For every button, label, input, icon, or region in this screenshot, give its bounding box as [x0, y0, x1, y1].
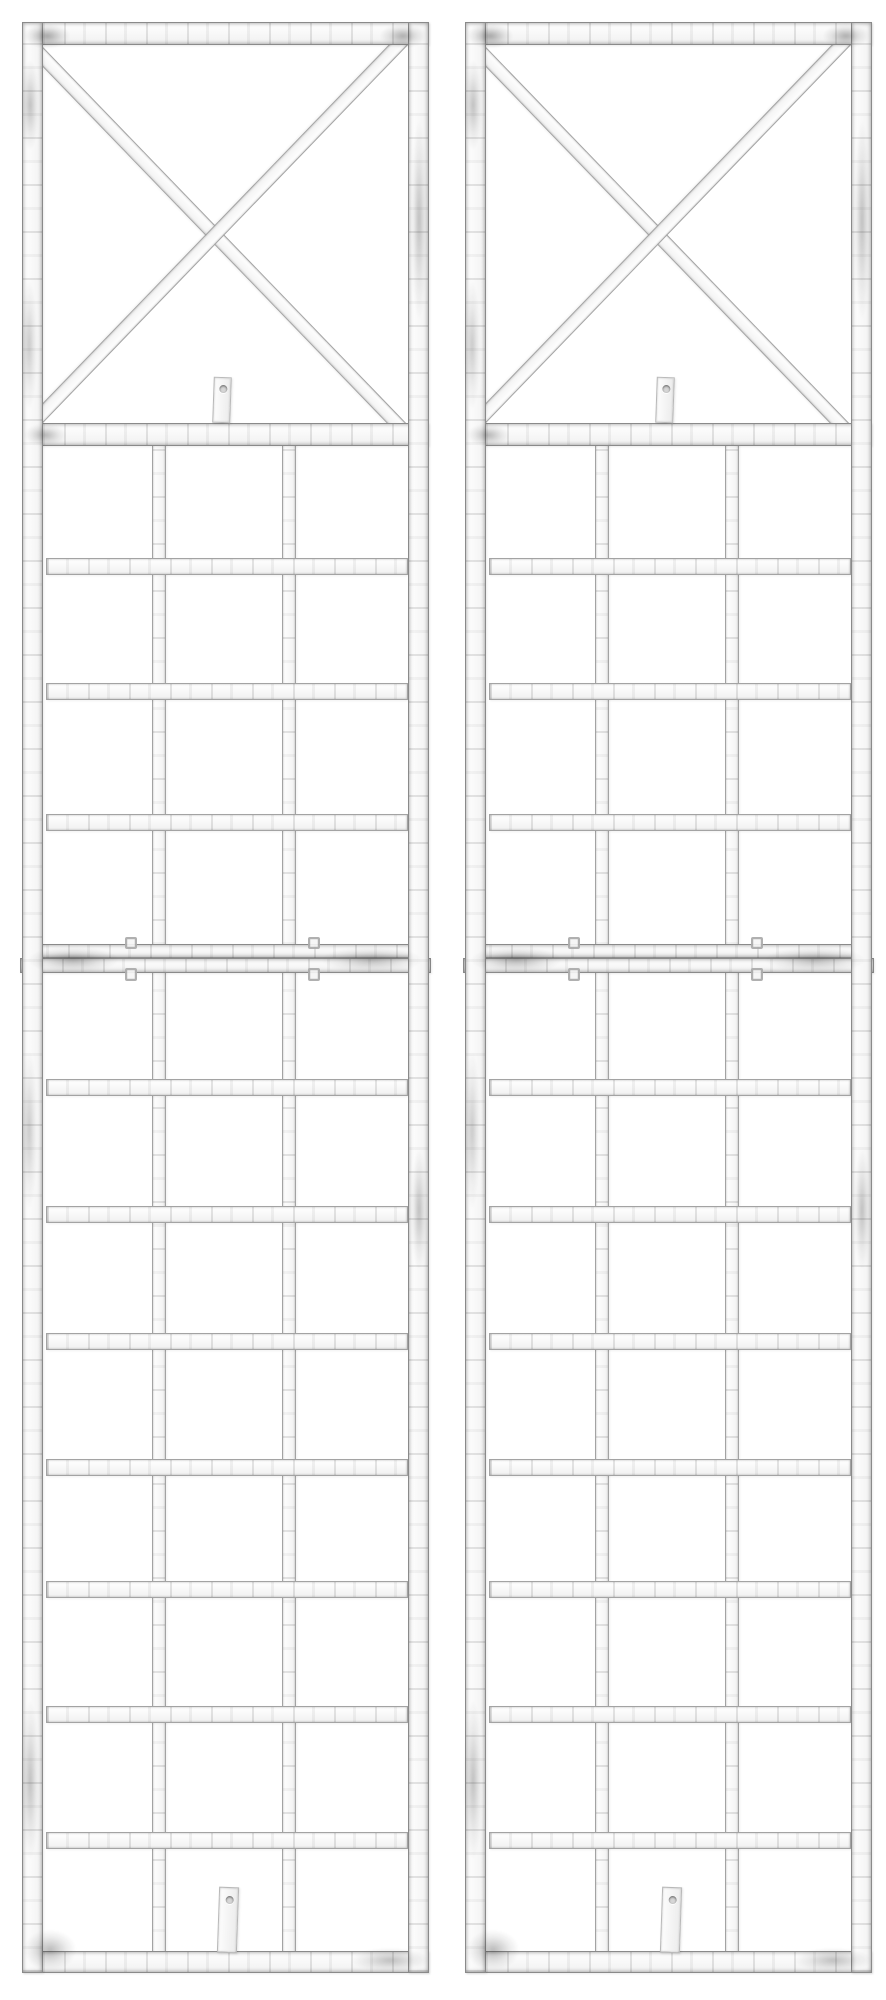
grid-horizontal-bar: [489, 1079, 851, 1096]
lower-mount-tab: [660, 1887, 682, 1954]
screw-hole: [226, 1896, 234, 1904]
frame-top-bar: [22, 22, 429, 45]
grid-horizontal-bar: [46, 1333, 408, 1350]
grid-horizontal-bar: [489, 1832, 851, 1849]
trellis-scene: Product photo: two identical white shabb…: [0, 0, 886, 2000]
grid-horizontal-bar: [46, 683, 408, 700]
junction-clip: [568, 937, 580, 949]
grid-horizontal-bar: [46, 1459, 408, 1476]
grid-horizontal-bar: [46, 1079, 408, 1096]
lower-mount-tab: [217, 1887, 239, 1954]
junction-clip: [125, 968, 137, 981]
frame-left-bar: [22, 22, 43, 1973]
junction-clip: [308, 937, 320, 949]
grid-horizontal-bar: [489, 1206, 851, 1223]
frame-left-bar: [465, 22, 486, 1973]
grid-horizontal-bar: [46, 1206, 408, 1223]
grid-horizontal-bar: [489, 1333, 851, 1350]
grid-horizontal-bar: [46, 1832, 408, 1849]
frame-bottom-bar: [22, 1951, 429, 1973]
grid-vertical-bar: [595, 440, 609, 1956]
frame-right-bar: [408, 22, 429, 1973]
image-description: Product photo: two identical white shabb…: [0, 0, 1, 1]
grid-horizontal-bar: [489, 1581, 851, 1598]
grid-vertical-bar: [282, 440, 296, 1956]
screw-hole: [669, 1896, 677, 1904]
upper-mount-tab: [212, 377, 232, 424]
trellis-panel-left: [22, 22, 429, 1973]
frame-top-bar: [465, 22, 872, 45]
junction-bar-upper: [26, 944, 425, 959]
frame-bottom-bar: [465, 1951, 872, 1973]
frame-right-bar: [851, 22, 872, 1973]
junction-bar-lower: [20, 958, 431, 973]
xbox-bottom-bar: [465, 423, 872, 446]
junction-clip: [751, 968, 763, 981]
junction-bar-lower: [463, 958, 874, 973]
grid-horizontal-bar: [46, 814, 408, 831]
grid-horizontal-bar: [489, 1459, 851, 1476]
screw-hole: [219, 385, 227, 393]
upper-mount-tab: [655, 377, 675, 424]
grid-vertical-bar: [725, 440, 739, 1956]
junction-clip: [568, 968, 580, 981]
grid-horizontal-bar: [489, 814, 851, 831]
grid-horizontal-bar: [489, 1706, 851, 1723]
screw-hole: [662, 385, 670, 393]
grid-vertical-bar: [152, 440, 166, 1956]
junction-clip: [751, 937, 763, 949]
grid-horizontal-bar: [46, 558, 408, 575]
grid-horizontal-bar: [46, 1581, 408, 1598]
grid-horizontal-bar: [489, 683, 851, 700]
trellis-panel-right: [465, 22, 872, 1973]
junction-bar-upper: [469, 944, 868, 959]
junction-clip: [308, 968, 320, 981]
grid-horizontal-bar: [489, 558, 851, 575]
xbox-bottom-bar: [22, 423, 429, 446]
grid-horizontal-bar: [46, 1706, 408, 1723]
junction-clip: [125, 937, 137, 949]
